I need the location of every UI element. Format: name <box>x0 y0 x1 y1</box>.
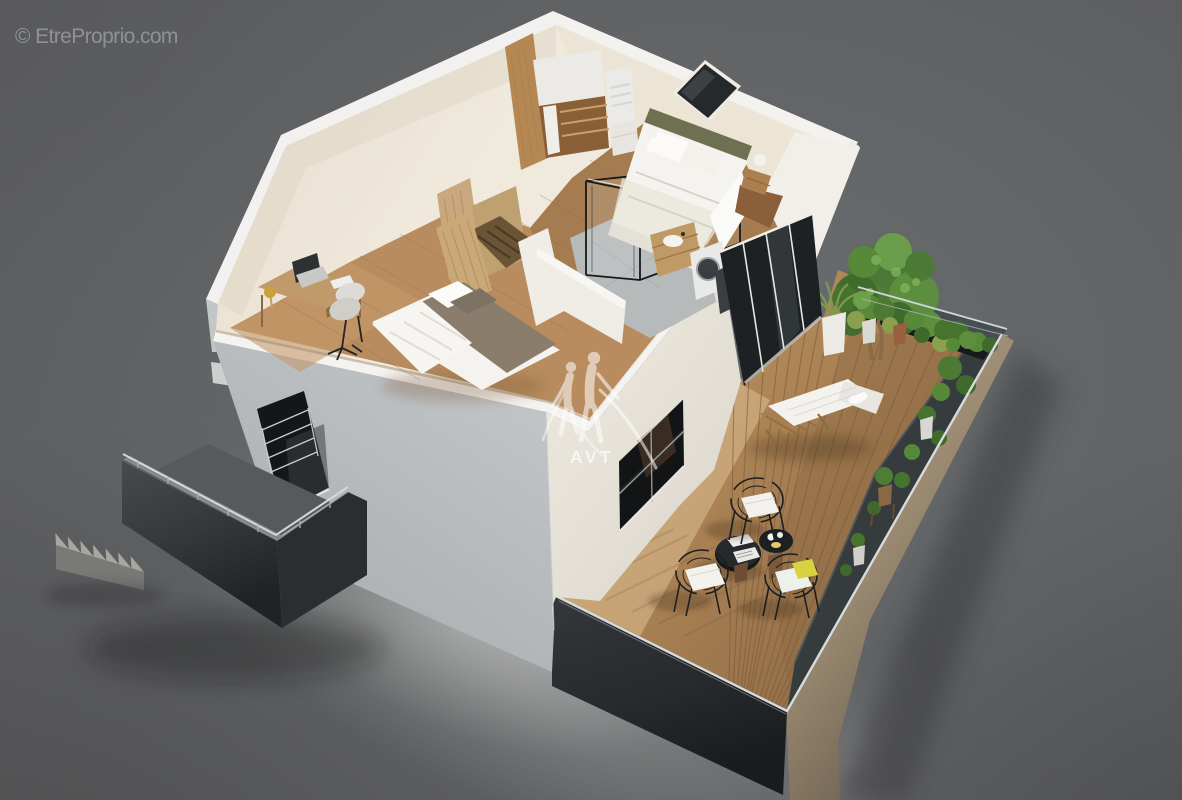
svg-text:© EtreProprio.com: © EtreProprio.com <box>15 25 178 48</box>
svg-text:AVT: AVT <box>570 447 614 467</box>
